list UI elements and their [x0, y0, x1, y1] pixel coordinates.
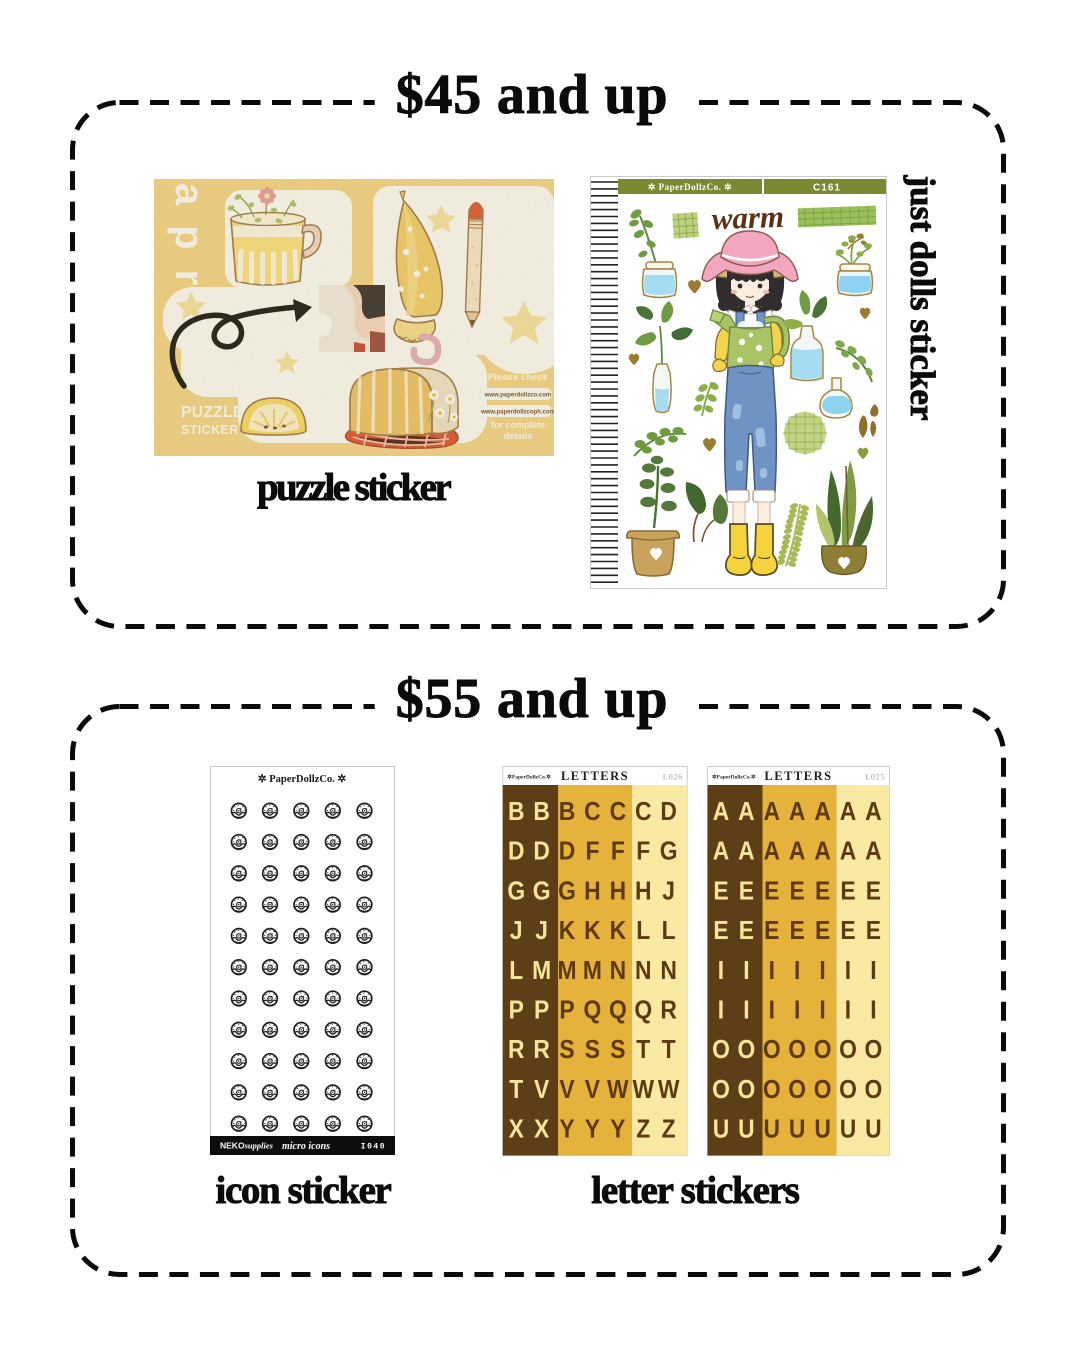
svg-text:T: T	[662, 1036, 676, 1065]
svg-text:K: K	[610, 917, 627, 946]
svg-text:LETTERS: LETTERS	[764, 769, 832, 783]
svg-text:I: I	[718, 957, 724, 986]
svg-text:R: R	[660, 996, 677, 1025]
svg-text:M: M	[558, 957, 577, 986]
svg-text:S: S	[559, 1036, 574, 1065]
svg-text:O: O	[865, 1076, 883, 1105]
svg-text:C: C	[610, 798, 627, 827]
svg-text:NEKOsupplies: NEKOsupplies	[220, 1141, 274, 1151]
svg-text:A: A	[814, 798, 831, 827]
svg-text:L: L	[636, 917, 650, 946]
svg-text:E: E	[713, 877, 728, 906]
svg-text:P: P	[534, 996, 549, 1025]
svg-text:W: W	[607, 1076, 629, 1105]
svg-text:F: F	[636, 837, 650, 866]
svg-text:U: U	[738, 1115, 755, 1144]
svg-text:I: I	[819, 957, 825, 986]
svg-text:S: S	[610, 1036, 625, 1065]
svg-text:I: I	[718, 996, 724, 1025]
svg-text:P: P	[509, 996, 524, 1025]
svg-text:P: P	[559, 996, 574, 1025]
svg-text:E: E	[790, 877, 805, 906]
svg-text:W: W	[658, 1076, 680, 1105]
svg-text:E: E	[713, 917, 728, 946]
svg-text:A: A	[840, 798, 857, 827]
svg-text:I: I	[794, 957, 800, 986]
svg-text:E: E	[790, 917, 805, 946]
svg-text:I: I	[743, 996, 749, 1025]
svg-text:E: E	[815, 917, 830, 946]
svg-text:A: A	[713, 798, 730, 827]
svg-text:R: R	[533, 1036, 550, 1065]
svg-text:L: L	[509, 957, 523, 986]
svg-text:A: A	[840, 837, 857, 866]
svg-text:T: T	[509, 1076, 523, 1105]
svg-text:A: A	[814, 837, 831, 866]
svg-text:F: F	[585, 837, 599, 866]
svg-text:O: O	[738, 1076, 756, 1105]
svg-text:O: O	[814, 1076, 832, 1105]
svg-text:B: B	[508, 798, 525, 827]
svg-text:A: A	[764, 798, 781, 827]
svg-text:V: V	[585, 1076, 601, 1105]
svg-text:R: R	[508, 1036, 525, 1065]
svg-text:Y: Y	[610, 1115, 625, 1144]
svg-text:S: S	[585, 1036, 600, 1065]
svg-text:U: U	[840, 1115, 857, 1144]
svg-text:D: D	[533, 837, 550, 866]
svg-text:L: L	[662, 917, 676, 946]
svg-text:I: I	[845, 996, 851, 1025]
svg-text:U: U	[764, 1115, 781, 1144]
svg-text:U: U	[865, 1115, 882, 1144]
svg-text:K: K	[584, 917, 601, 946]
svg-text:O: O	[788, 1036, 806, 1065]
svg-text:LETTERS: LETTERS	[561, 769, 629, 783]
svg-text:I: I	[794, 996, 800, 1025]
svg-text:N: N	[635, 957, 652, 986]
svg-text:J: J	[510, 917, 523, 946]
svg-text:O: O	[839, 1036, 857, 1065]
svg-text:C161: C161	[813, 183, 841, 194]
svg-text:E: E	[840, 877, 855, 906]
svg-text:A: A	[789, 837, 806, 866]
svg-text:C: C	[635, 798, 652, 827]
svg-text:U: U	[713, 1115, 730, 1144]
svg-text:O: O	[865, 1036, 883, 1065]
svg-text:M: M	[583, 957, 602, 986]
svg-text:E: E	[739, 917, 754, 946]
svg-text:Y: Y	[559, 1115, 574, 1144]
svg-text:X: X	[509, 1115, 525, 1144]
svg-text:H: H	[584, 877, 601, 906]
svg-text:U: U	[814, 1115, 831, 1144]
svg-text:L026: L026	[663, 772, 683, 782]
svg-text:Q: Q	[584, 996, 602, 1025]
svg-text:N: N	[610, 957, 627, 986]
svg-text:Q: Q	[609, 996, 627, 1025]
svg-text:H: H	[610, 877, 627, 906]
svg-text:T: T	[636, 1036, 650, 1065]
svg-text:I: I	[870, 996, 876, 1025]
svg-text:G: G	[660, 837, 678, 866]
svg-text:C: C	[584, 798, 601, 827]
svg-text:Y: Y	[585, 1115, 600, 1144]
svg-text:W: W	[632, 1076, 654, 1105]
svg-text:E: E	[866, 917, 881, 946]
svg-text:E: E	[866, 877, 881, 906]
svg-text:O: O	[712, 1036, 730, 1065]
svg-text:O: O	[738, 1036, 756, 1065]
svg-text:O: O	[712, 1076, 730, 1105]
svg-text:E: E	[815, 877, 830, 906]
svg-text:K: K	[559, 917, 576, 946]
svg-text:A: A	[865, 837, 882, 866]
svg-text:✲PaperDollzCo.✲: ✲PaperDollzCo.✲	[507, 774, 551, 781]
svg-text:Z: Z	[662, 1115, 676, 1144]
svg-text:D: D	[660, 798, 677, 827]
svg-text:U: U	[789, 1115, 806, 1144]
svg-text:D: D	[508, 837, 525, 866]
svg-text:A: A	[789, 798, 806, 827]
svg-text:I: I	[769, 957, 775, 986]
svg-text:I040: I040	[361, 1143, 386, 1152]
svg-text:E: E	[764, 877, 779, 906]
svg-text:Q: Q	[634, 996, 652, 1025]
svg-text:I: I	[819, 996, 825, 1025]
svg-text:I: I	[769, 996, 775, 1025]
svg-text:✲PaperDollzCo.✲: ✲PaperDollzCo.✲	[712, 774, 756, 781]
svg-text:I: I	[870, 957, 876, 986]
svg-text:D: D	[559, 837, 576, 866]
svg-text:B: B	[533, 798, 550, 827]
svg-text:M: M	[532, 957, 551, 986]
svg-text:G: G	[507, 877, 525, 906]
svg-text:L025: L025	[865, 772, 885, 782]
svg-text:✲ PaperDollzCo. ✲: ✲ PaperDollzCo. ✲	[258, 773, 347, 785]
svg-text:A: A	[738, 837, 755, 866]
svg-text:A: A	[865, 798, 882, 827]
svg-text:I: I	[743, 957, 749, 986]
svg-text:G: G	[533, 877, 551, 906]
svg-text:J: J	[662, 877, 675, 906]
svg-text:B: B	[559, 798, 576, 827]
svg-text:J: J	[535, 917, 548, 946]
svg-text:E: E	[739, 877, 754, 906]
svg-text:H: H	[635, 877, 652, 906]
svg-text:O: O	[839, 1076, 857, 1105]
svg-text:V: V	[534, 1076, 550, 1105]
svg-text:V: V	[559, 1076, 575, 1105]
svg-text:O: O	[814, 1036, 832, 1065]
svg-text:A: A	[738, 798, 755, 827]
svg-text:I: I	[845, 957, 851, 986]
svg-text:E: E	[840, 917, 855, 946]
svg-text:O: O	[763, 1036, 781, 1065]
svg-text:F: F	[611, 837, 625, 866]
svg-text:A: A	[764, 837, 781, 866]
svg-text:E: E	[764, 917, 779, 946]
svg-text:O: O	[788, 1076, 806, 1105]
svg-text:✲ PaperDollzCo. ✲: ✲ PaperDollzCo. ✲	[648, 182, 732, 192]
svg-text:G: G	[558, 877, 576, 906]
svg-text:X: X	[534, 1115, 550, 1144]
svg-text:N: N	[660, 957, 677, 986]
svg-text:O: O	[763, 1076, 781, 1105]
svg-text:micro icons: micro icons	[282, 1141, 330, 1152]
svg-text:A: A	[713, 837, 730, 866]
svg-text:Z: Z	[636, 1115, 650, 1144]
